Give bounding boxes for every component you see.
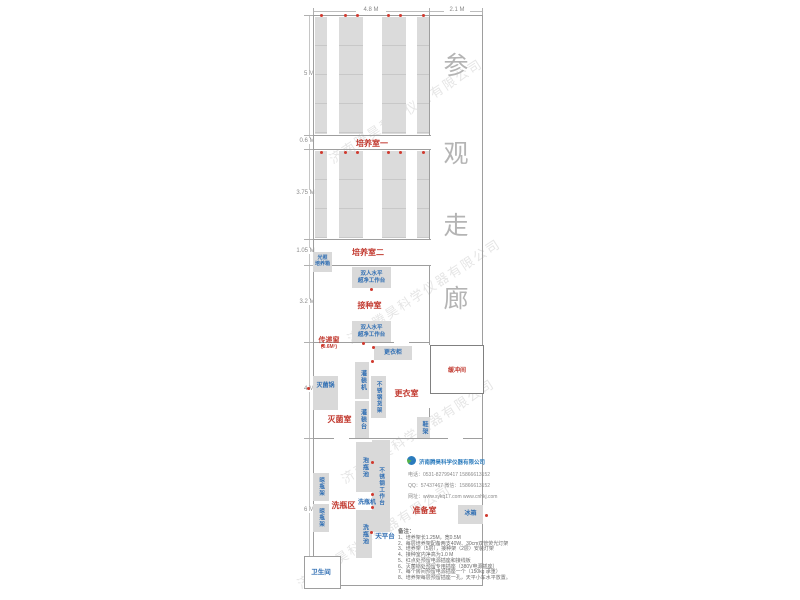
power-outlet-dot: [356, 14, 359, 17]
room-label-preparation: 准备室: [411, 505, 438, 516]
company-contact-web: 网址：www.sykq17.com www.cnhkj.com: [408, 493, 497, 500]
wall-sterilization-bottom: [349, 438, 448, 439]
room-label-inoculation: 接种室: [356, 300, 383, 311]
dim-tick: [304, 342, 313, 343]
culture-rack: [394, 151, 406, 238]
note-line: 8、培养架每层预留插座一孔，天平小车水平放置。: [398, 576, 498, 582]
clean-bench: 双人水平 超净工作台: [352, 267, 391, 288]
culture-rack: [394, 17, 406, 134]
clean-bench: 双人水平 超净工作台: [352, 321, 391, 342]
power-outlet-dot: [320, 151, 323, 154]
wall-sterilization-bottom: [313, 438, 334, 439]
corridor-title-char: 廊: [441, 279, 471, 315]
dim-top-main: 4.8 M: [356, 7, 386, 13]
light-incubator: 光照 培养箱: [313, 252, 332, 272]
culture-rack: [339, 151, 351, 238]
dim-tick: [313, 8, 314, 15]
filling-machine: 灌装机: [355, 362, 369, 399]
dim-tick: [304, 438, 313, 439]
balance-table: 天平台: [373, 530, 397, 540]
power-outlet-dot: [485, 514, 488, 517]
power-outlet-dot: [344, 14, 347, 17]
wall-culture2-top: [313, 239, 431, 240]
power-outlet-dot: [371, 461, 374, 464]
culture-rack: [351, 17, 363, 134]
bottle-washer: 洗瓶机: [355, 497, 379, 506]
buffer-room: 缓冲间: [430, 345, 484, 394]
power-outlet-dot: [307, 387, 310, 390]
culture-rack: [339, 17, 351, 134]
notes-block: 备注： 1、培养架长1.25M，宽0.5M2、每层培养架配备两支40W、30cm…: [398, 527, 498, 582]
culture-rack: [351, 151, 363, 238]
power-outlet-dot: [399, 14, 402, 17]
dim-tick: [482, 8, 483, 15]
soak-pool: 泡瓶池: [356, 442, 372, 492]
culture-rack: [315, 151, 327, 238]
drying-rack: 晾瓶架: [313, 473, 329, 501]
power-outlet-dot: [356, 151, 359, 154]
drying-rack: 晾瓶架: [313, 504, 329, 532]
culture-rack: [382, 17, 394, 134]
power-outlet-dot: [422, 14, 425, 17]
culture-rack: [382, 151, 394, 238]
dim-left-4: 3.2 M: [294, 299, 320, 305]
wall-sterilization-bottom: [463, 438, 482, 439]
dim-tick: [304, 239, 313, 240]
power-outlet-dot: [362, 342, 365, 345]
filling-table: 灌装台: [355, 401, 369, 438]
wall-corridor: [429, 149, 430, 239]
wall-culture1-top: [313, 135, 431, 136]
wall-corridor: [429, 15, 430, 135]
notes-title: 备注：: [398, 527, 498, 535]
dim-tick: [304, 149, 313, 150]
dim-top-corridor: 2.1 M: [444, 7, 470, 13]
power-outlet-dot: [387, 14, 390, 17]
company-logo-icon: [407, 456, 416, 465]
culture-rack: [315, 17, 327, 134]
power-outlet-dot: [320, 14, 323, 17]
power-outlet-dot: [387, 151, 390, 154]
power-outlet-dot: [371, 360, 374, 363]
power-outlet-dot: [370, 531, 373, 534]
culture-rack: [417, 151, 429, 238]
power-outlet-dot: [371, 506, 374, 509]
power-outlet-dot: [321, 344, 324, 347]
power-outlet-dot: [371, 493, 374, 496]
wash-pool: 洗瓶池: [356, 510, 372, 558]
room-label-washing-area: 洗瓶区: [330, 500, 357, 511]
dim-left-1: 0.6 M: [294, 138, 320, 144]
power-outlet-dot: [344, 151, 347, 154]
room-label-buffer: 缓冲间: [448, 365, 466, 374]
room-label-culture2: 培养室二: [351, 247, 385, 258]
company-name: 济南腾昊科学仪器有限公司: [419, 458, 485, 466]
dim-tick: [304, 265, 313, 266]
power-outlet-dot: [399, 151, 402, 154]
corridor-title-char: 观: [441, 134, 471, 170]
dim-tick: [304, 15, 313, 16]
wall-corridor: [429, 265, 430, 345]
corridor-title-char: 走: [441, 206, 471, 242]
wall-inoculation-bottom: [409, 342, 429, 343]
corridor-title-char: 参: [441, 46, 471, 82]
power-outlet-dot: [370, 288, 373, 291]
room-label-culture1: 培养室一: [355, 138, 389, 149]
power-outlet-dot: [422, 151, 425, 154]
dim-tick: [304, 135, 313, 136]
floor-plan-canvas: 济南腾昊科学仪器有限公司 济南腾昊科学仪器有限公司 济南腾昊科学仪器有限公司 济…: [0, 0, 800, 600]
wardrobe: 更衣柜: [374, 346, 412, 360]
autoclave: 灭菌锅: [313, 376, 338, 410]
steel-shelf: 不锈钢货架: [371, 376, 386, 418]
dim-tick: [429, 8, 430, 15]
room-label-sterilization: 灭菌室: [326, 414, 353, 425]
room-label-changing: 更衣室: [393, 388, 420, 399]
culture-rack: [417, 17, 429, 134]
room-label-bathroom: 卫生间: [306, 566, 336, 576]
company-contact-phone: 电话：0531-82799417 15866613152: [408, 471, 490, 478]
notes-list: 1、培养架长1.25M，宽0.5M2、每层培养架配备两支40W、30cm双管荧光…: [398, 536, 498, 582]
fridge: 冰箱: [458, 505, 483, 524]
shoe-rack: 鞋架: [417, 417, 430, 438]
steel-worktable: 不锈钢工作台: [372, 440, 390, 532]
power-outlet-dot: [372, 346, 375, 349]
wall-culture1-bottom: [313, 149, 431, 150]
company-contact-qq: QQ：57437467 微信：15866613152: [408, 482, 490, 489]
